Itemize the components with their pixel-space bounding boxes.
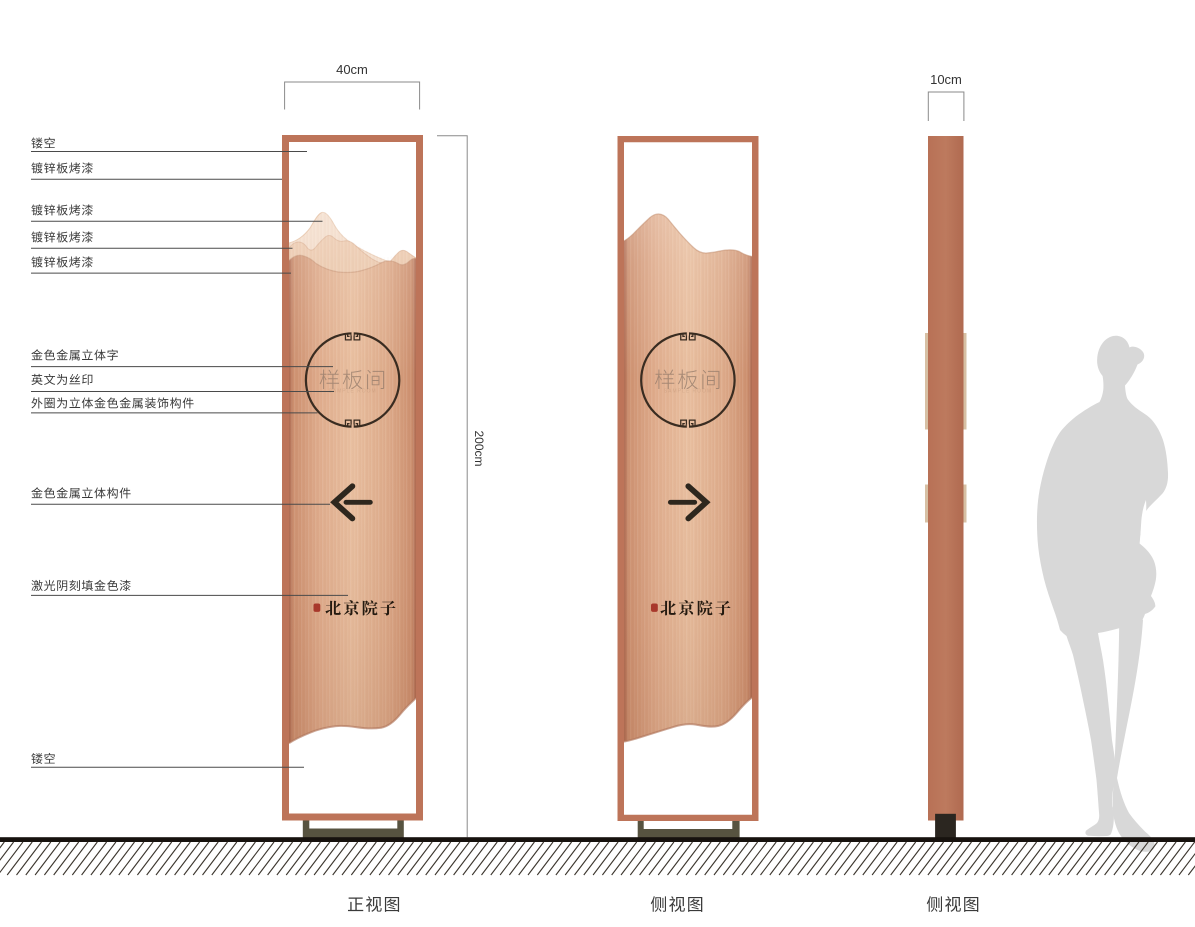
svg-text:200cm: 200cm [472,430,486,466]
svg-text:40cm: 40cm [336,62,368,77]
svg-text:10cm: 10cm [930,72,962,87]
svg-text:SAMPLE ROOM: SAMPLE ROOM [328,389,376,395]
svg-text:SAMPLE ROOM: SAMPLE ROOM [664,389,712,395]
